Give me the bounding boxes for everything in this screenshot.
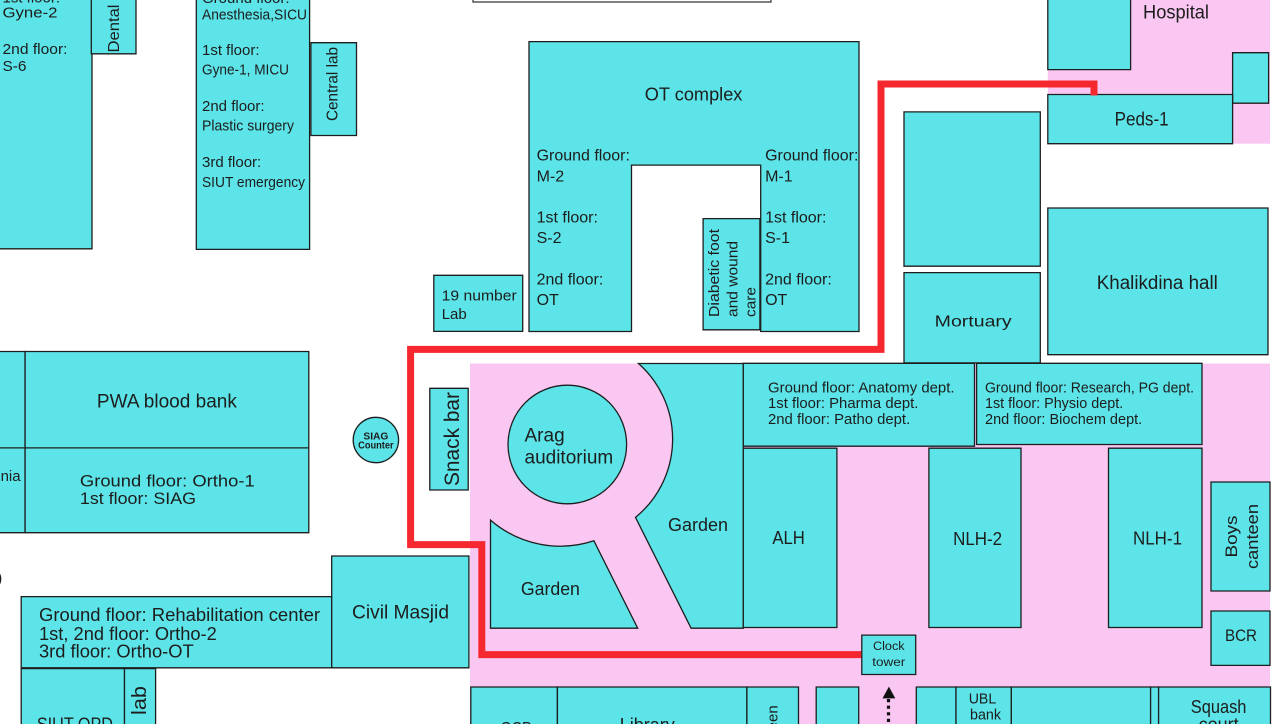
svg-text:Canteen: Canteen	[765, 705, 782, 724]
svg-text:M-2: M-2	[537, 168, 565, 185]
svg-text:Central lab: Central lab	[325, 47, 342, 121]
svg-text:Dental: Dental	[106, 5, 123, 53]
svg-text:3rd floor: Ortho-OT: 3rd floor: Ortho-OT	[39, 641, 194, 661]
svg-text:2nd floor: Patho dept.: 2nd floor: Patho dept.	[768, 411, 910, 428]
svg-text:UBL: UBL	[969, 692, 997, 708]
svg-text:PWA blood bank: PWA blood bank	[97, 392, 237, 413]
svg-text:1st floor: SIAG: 1st floor: SIAG	[80, 489, 196, 508]
svg-text:Counter: Counter	[358, 440, 394, 451]
svg-text:2nd floor:: 2nd floor:	[3, 41, 68, 58]
svg-text:Ground floor: Rehabilitation c: Ground floor: Rehabilitation center	[39, 605, 320, 625]
svg-text:Lab: Lab	[442, 306, 467, 323]
svg-text:OT: OT	[765, 292, 787, 309]
svg-text:SIUT OPD: SIUT OPD	[37, 715, 113, 724]
svg-text:1st floor: Pharma dept.: 1st floor: Pharma dept.	[768, 395, 918, 412]
svg-text:tower: tower	[872, 657, 905, 669]
svg-text:Khalikdina hall: Khalikdina hall	[1097, 273, 1218, 294]
svg-text:Ground floor: Anatomy dept.: Ground floor: Anatomy dept.	[768, 380, 955, 397]
svg-text:NLH-1: NLH-1	[1133, 529, 1182, 549]
svg-text:BCR: BCR	[1225, 626, 1257, 645]
svg-text:Clock: Clock	[873, 641, 905, 653]
svg-text:): )	[0, 570, 2, 587]
svg-text:Arag: Arag	[525, 426, 565, 447]
svg-text:Civil Masjid: Civil Masjid	[352, 602, 449, 623]
svg-text:M-1: M-1	[765, 168, 793, 185]
svg-text:canteen: canteen	[1243, 504, 1262, 569]
svg-text:GCP: GCP	[501, 719, 532, 724]
svg-text:care: care	[743, 287, 760, 317]
svg-text:S-6: S-6	[3, 58, 27, 75]
svg-text:Hospital: Hospital	[1143, 3, 1209, 24]
svg-text:Boys: Boys	[1222, 516, 1241, 558]
svg-text:nia: nia	[1, 468, 22, 485]
svg-text:and wound: and wound	[725, 241, 742, 317]
svg-text:Peds-1: Peds-1	[1115, 110, 1169, 131]
svg-text:Gyne-2: Gyne-2	[3, 5, 58, 22]
svg-text:Anesthesia,SICU: Anesthesia,SICU	[202, 7, 307, 24]
svg-text:Ground floor: Ortho-1: Ground floor: Ortho-1	[80, 472, 255, 491]
svg-text:S-2: S-2	[537, 230, 562, 247]
svg-text:court: court	[1199, 715, 1239, 724]
svg-text:OT: OT	[537, 292, 559, 309]
svg-text:NLH-2: NLH-2	[953, 529, 1002, 549]
svg-text:1st floor:: 1st floor:	[537, 210, 598, 227]
svg-text:2nd floor:: 2nd floor:	[202, 98, 265, 115]
svg-text:OT complex: OT complex	[645, 84, 743, 104]
svg-text:1st floor:: 1st floor:	[765, 210, 826, 227]
svg-text:1st floor: Physio dept.: 1st floor: Physio dept.	[985, 395, 1123, 412]
svg-text:lab: lab	[129, 686, 151, 715]
svg-text:auditorium: auditorium	[525, 448, 614, 469]
svg-text:S-1: S-1	[765, 230, 790, 247]
svg-text:Diabetic foot: Diabetic foot	[706, 228, 723, 317]
svg-text:Garden: Garden	[668, 515, 728, 535]
svg-text:Snack bar: Snack bar	[441, 392, 464, 486]
svg-text:3rd floor:: 3rd floor:	[202, 154, 261, 171]
svg-text:2nd floor: Biochem dept.: 2nd floor: Biochem dept.	[985, 411, 1142, 428]
svg-text:SIUT emergency: SIUT emergency	[202, 174, 305, 191]
svg-text:2nd floor:: 2nd floor:	[765, 271, 832, 288]
svg-text:Ground floor: Research, PG dep: Ground floor: Research, PG dept.	[985, 380, 1194, 397]
svg-text:Garden: Garden	[521, 579, 580, 599]
svg-text:bank: bank	[970, 708, 1002, 724]
svg-text:2nd floor:: 2nd floor:	[537, 271, 604, 288]
svg-text:Ground floor:: Ground floor:	[537, 148, 630, 165]
svg-text:Ground floor:: Ground floor:	[765, 148, 858, 165]
svg-text:Gyne-1, MICU: Gyne-1, MICU	[202, 62, 289, 79]
svg-text:Mortuary: Mortuary	[935, 313, 1012, 330]
svg-text:Plastic surgery: Plastic surgery	[202, 118, 294, 135]
svg-text:19 number: 19 number	[442, 288, 517, 305]
svg-text:ALH: ALH	[772, 527, 805, 548]
svg-text:Library: Library	[620, 715, 675, 724]
svg-text:1st floor:: 1st floor:	[202, 42, 260, 59]
